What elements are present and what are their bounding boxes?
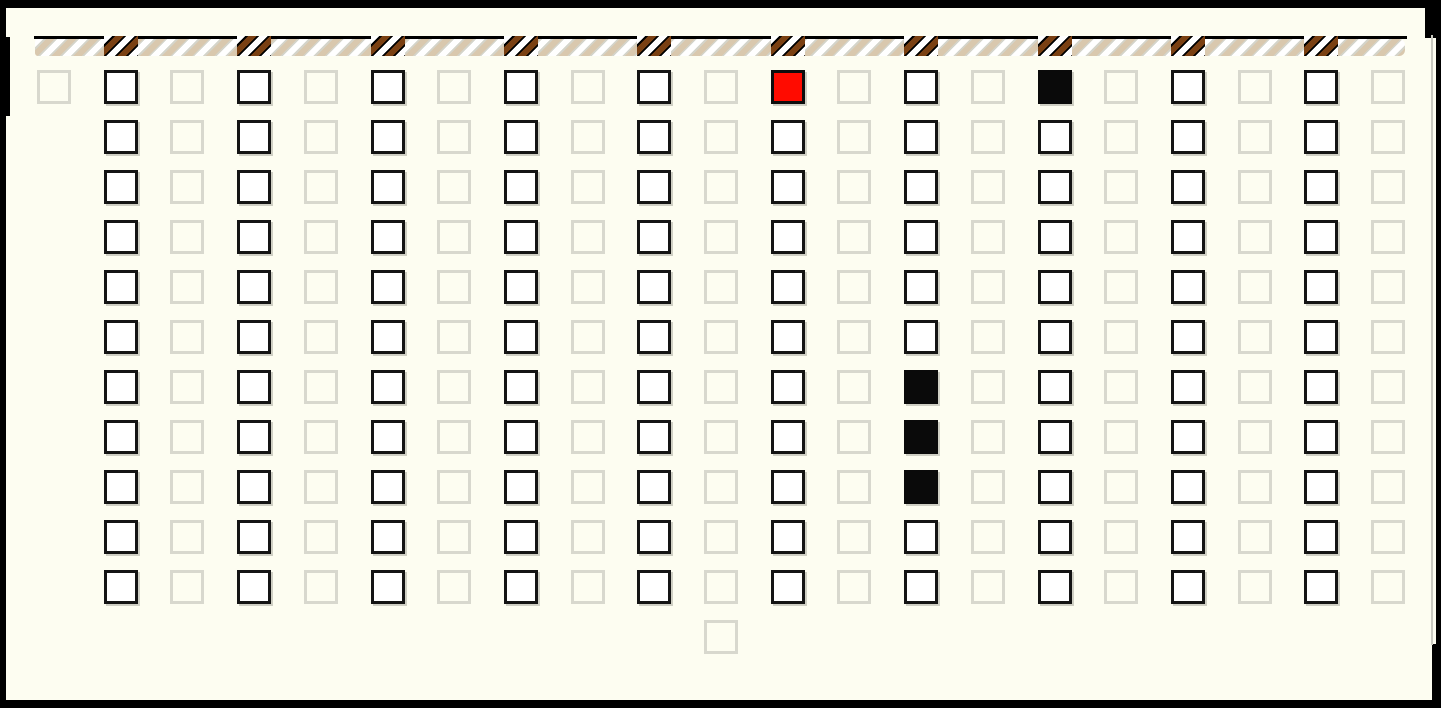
grid-cell	[170, 170, 204, 204]
grid-cell[interactable]	[104, 320, 138, 354]
grid-cell	[971, 120, 1005, 154]
grid-cell[interactable]	[371, 370, 405, 404]
grid-cell	[170, 470, 204, 504]
grid-cell	[1371, 470, 1405, 504]
grid-cell	[1371, 120, 1405, 154]
grid-cell[interactable]	[237, 470, 271, 504]
grid-cell	[437, 170, 471, 204]
grid-cell	[837, 520, 871, 554]
grid-cell[interactable]	[237, 320, 271, 354]
grid-cell	[571, 320, 605, 354]
grid-cell[interactable]	[637, 320, 671, 354]
grid-cell	[1238, 370, 1272, 404]
grid-cell	[304, 270, 338, 304]
grid-cell	[1238, 320, 1272, 354]
grid-cell	[1371, 570, 1405, 604]
grid-cell	[571, 370, 605, 404]
grid-cell	[1238, 420, 1272, 454]
grid-cell[interactable]	[237, 520, 271, 554]
grid-cell[interactable]	[504, 70, 538, 104]
grid-cell	[304, 170, 338, 204]
grid-cell	[1104, 120, 1138, 154]
grid-cell	[170, 420, 204, 454]
grid-cell[interactable]	[1304, 370, 1338, 404]
grid-cell[interactable]	[504, 370, 538, 404]
grid-cell	[437, 320, 471, 354]
grid-cell[interactable]	[371, 470, 405, 504]
grid-cell	[971, 320, 1005, 354]
grid-cell	[837, 320, 871, 354]
grid-cell[interactable]	[104, 470, 138, 504]
grid-cell	[1104, 520, 1138, 554]
grid-cell	[571, 120, 605, 154]
grid-cell[interactable]	[1304, 220, 1338, 254]
grid-cell	[304, 470, 338, 504]
grid-cell	[1371, 520, 1405, 554]
frame-bottom-border	[0, 700, 1441, 708]
grid-cell[interactable]	[371, 420, 405, 454]
grid-cell	[37, 70, 71, 104]
grid-cell[interactable]	[1304, 470, 1338, 504]
grid-cell[interactable]	[237, 220, 271, 254]
grid-cell[interactable]	[104, 270, 138, 304]
grid-cell	[170, 570, 204, 604]
grid-cell[interactable]	[771, 320, 805, 354]
grid-cell	[971, 420, 1005, 454]
frame-right-inner-line	[1431, 35, 1433, 645]
app-window	[0, 0, 1441, 708]
grid-cell	[971, 270, 1005, 304]
grid-cell[interactable]	[104, 170, 138, 204]
grid-cell[interactable]	[1038, 370, 1072, 404]
grid-cell	[1371, 320, 1405, 354]
grid-cell-filled-black[interactable]	[1038, 70, 1072, 104]
grid-cell[interactable]	[237, 70, 271, 104]
grid-cell	[1104, 220, 1138, 254]
grid-cell	[971, 70, 1005, 104]
grid-cell[interactable]	[637, 170, 671, 204]
grid-cell	[1104, 70, 1138, 104]
grid-cell	[571, 170, 605, 204]
grid-cell[interactable]	[104, 120, 138, 154]
grid-cell	[971, 470, 1005, 504]
grid-cell	[437, 570, 471, 604]
grid-cell[interactable]	[904, 320, 938, 354]
grid-cell	[571, 70, 605, 104]
grid-cell[interactable]	[1038, 470, 1072, 504]
grid-cell	[837, 220, 871, 254]
grid-cell	[170, 70, 204, 104]
grid-cell[interactable]	[237, 420, 271, 454]
grid-cell[interactable]	[1038, 270, 1072, 304]
grid-cell[interactable]	[504, 420, 538, 454]
grid-cell	[304, 420, 338, 454]
grid-cell[interactable]	[104, 70, 138, 104]
frame-left-accent	[0, 37, 10, 116]
grid-cell[interactable]	[1304, 270, 1338, 304]
grid-cell[interactable]	[1038, 220, 1072, 254]
grid-cell	[170, 270, 204, 304]
grid-cell	[571, 520, 605, 554]
grid-cell-filled-black[interactable]	[904, 420, 938, 454]
beat-marker-tab[interactable]	[371, 36, 405, 56]
grid-cell[interactable]	[1038, 420, 1072, 454]
grid-cell	[571, 470, 605, 504]
grid-cell	[1104, 420, 1138, 454]
grid-cell	[971, 220, 1005, 254]
grid-cell[interactable]	[771, 370, 805, 404]
grid-cell[interactable]	[904, 220, 938, 254]
grid-cell	[704, 620, 738, 654]
beat-marker-tab[interactable]	[637, 36, 671, 56]
grid-cell[interactable]	[1171, 420, 1205, 454]
grid-cell[interactable]	[104, 570, 138, 604]
grid-cell	[437, 120, 471, 154]
grid-cell	[1104, 320, 1138, 354]
grid-cell	[1104, 370, 1138, 404]
grid-cell[interactable]	[1171, 120, 1205, 154]
grid-cell	[704, 570, 738, 604]
grid-cell[interactable]	[504, 520, 538, 554]
grid-cell-filled-black[interactable]	[904, 470, 938, 504]
grid-cell[interactable]	[504, 570, 538, 604]
grid-cell[interactable]	[1171, 470, 1205, 504]
grid-cell	[704, 220, 738, 254]
grid-cell	[170, 520, 204, 554]
grid-cell[interactable]	[371, 170, 405, 204]
grid-cell	[571, 570, 605, 604]
grid-cell[interactable]	[1304, 520, 1338, 554]
grid-cell	[304, 370, 338, 404]
grid-cell[interactable]	[1171, 170, 1205, 204]
grid-cell[interactable]	[637, 570, 671, 604]
grid-cell[interactable]	[1304, 320, 1338, 354]
grid-cell	[170, 120, 204, 154]
grid-cell	[304, 220, 338, 254]
grid-cell[interactable]	[504, 220, 538, 254]
beat-marker-tab[interactable]	[1304, 36, 1338, 56]
grid-cell	[437, 470, 471, 504]
grid-cell	[1371, 220, 1405, 254]
grid-cell	[170, 220, 204, 254]
grid-cell[interactable]	[1038, 320, 1072, 354]
grid-cell	[971, 170, 1005, 204]
grid-cell[interactable]	[1171, 320, 1205, 354]
grid-cell[interactable]	[237, 120, 271, 154]
grid-cell[interactable]	[371, 120, 405, 154]
grid-cell	[437, 520, 471, 554]
grid-cell	[1238, 470, 1272, 504]
grid-cell[interactable]	[1171, 70, 1205, 104]
grid-cell[interactable]	[504, 270, 538, 304]
grid-cell	[704, 470, 738, 504]
grid-cell[interactable]	[904, 520, 938, 554]
grid-cell[interactable]	[771, 470, 805, 504]
grid-cell	[571, 220, 605, 254]
grid-cell	[437, 420, 471, 454]
grid-cell[interactable]	[1171, 370, 1205, 404]
frame-top-right-accent	[1425, 0, 1441, 38]
grid-cell[interactable]	[637, 70, 671, 104]
grid-cell	[704, 170, 738, 204]
beat-marker-tab[interactable]	[1171, 36, 1205, 56]
grid-cell	[1104, 570, 1138, 604]
grid-cell	[1371, 270, 1405, 304]
grid-cell[interactable]	[771, 520, 805, 554]
grid-cell[interactable]	[1038, 570, 1072, 604]
grid-cell[interactable]	[1171, 570, 1205, 604]
grid-cell[interactable]	[637, 370, 671, 404]
grid-cell	[704, 520, 738, 554]
grid-cell	[837, 70, 871, 104]
grid-cell	[1371, 370, 1405, 404]
grid-cell	[704, 70, 738, 104]
grid-cell	[1238, 520, 1272, 554]
grid-cell	[304, 520, 338, 554]
grid-cell-filled-black[interactable]	[904, 370, 938, 404]
grid-cell[interactable]	[1171, 520, 1205, 554]
grid-cell[interactable]	[371, 70, 405, 104]
grid-cell[interactable]	[371, 220, 405, 254]
grid-cell[interactable]	[637, 420, 671, 454]
grid-cell[interactable]	[771, 270, 805, 304]
grid-cell[interactable]	[1038, 120, 1072, 154]
beat-marker-tab[interactable]	[504, 36, 538, 56]
grid-cell[interactable]	[1304, 70, 1338, 104]
grid-cell[interactable]	[904, 70, 938, 104]
beat-marker-tab[interactable]	[1038, 36, 1072, 56]
grid-cell	[837, 570, 871, 604]
grid-cell[interactable]	[1304, 570, 1338, 604]
beat-marker-tab[interactable]	[237, 36, 271, 56]
grid-cell	[304, 320, 338, 354]
grid-cell[interactable]	[904, 270, 938, 304]
grid-cell	[304, 70, 338, 104]
grid-cell[interactable]	[237, 370, 271, 404]
grid-cell[interactable]	[504, 170, 538, 204]
grid-cell[interactable]	[637, 470, 671, 504]
beat-marker-tab[interactable]	[771, 36, 805, 56]
grid-cell	[971, 520, 1005, 554]
grid-cell	[170, 320, 204, 354]
grid-cell	[1104, 170, 1138, 204]
grid-cell[interactable]	[1171, 220, 1205, 254]
grid-cell	[1104, 270, 1138, 304]
grid-cell[interactable]	[637, 520, 671, 554]
grid-cell	[1371, 70, 1405, 104]
grid-cell[interactable]	[771, 570, 805, 604]
grid-cell[interactable]	[371, 320, 405, 354]
grid-cell	[1238, 270, 1272, 304]
grid-cell	[304, 120, 338, 154]
grid-cell[interactable]	[1171, 270, 1205, 304]
grid-cell	[704, 420, 738, 454]
grid-cell[interactable]	[504, 470, 538, 504]
grid-cell	[1238, 570, 1272, 604]
grid-cell	[1371, 170, 1405, 204]
grid-cell[interactable]	[237, 570, 271, 604]
grid-cell	[1238, 170, 1272, 204]
grid-cell[interactable]	[771, 170, 805, 204]
grid-cell	[837, 420, 871, 454]
grid-cell[interactable]	[504, 320, 538, 354]
grid-cell[interactable]	[104, 520, 138, 554]
grid-cell[interactable]	[1038, 520, 1072, 554]
grid-cell	[304, 570, 338, 604]
grid-cell	[437, 270, 471, 304]
grid-cell	[704, 370, 738, 404]
grid-cell[interactable]	[237, 270, 271, 304]
grid-cell[interactable]	[904, 570, 938, 604]
grid-cell	[704, 120, 738, 154]
grid-cell[interactable]	[771, 220, 805, 254]
grid-cell	[170, 370, 204, 404]
frame-top-border	[0, 0, 1441, 8]
grid-cell	[1238, 70, 1272, 104]
grid-cell[interactable]	[104, 370, 138, 404]
beat-marker-tab[interactable]	[904, 36, 938, 56]
grid-cell[interactable]	[637, 120, 671, 154]
grid-cell	[1238, 120, 1272, 154]
grid-cell[interactable]	[1304, 170, 1338, 204]
grid-cell	[1238, 220, 1272, 254]
grid-cell	[971, 370, 1005, 404]
grid-cell[interactable]	[504, 120, 538, 154]
grid-cell	[437, 220, 471, 254]
grid-cell	[437, 70, 471, 104]
grid-cell	[704, 320, 738, 354]
grid-cell[interactable]	[637, 220, 671, 254]
grid-cell[interactable]	[104, 220, 138, 254]
frame-right-border	[1436, 0, 1441, 708]
grid-cell[interactable]	[371, 520, 405, 554]
grid-cell	[704, 270, 738, 304]
grid-cell	[837, 120, 871, 154]
frame-bottom-right-accent	[1432, 644, 1441, 708]
grid-cell[interactable]	[1038, 170, 1072, 204]
grid-cell[interactable]	[371, 570, 405, 604]
grid-cell	[571, 420, 605, 454]
grid-cell	[837, 370, 871, 404]
grid-cell[interactable]	[371, 270, 405, 304]
grid-cell[interactable]	[904, 120, 938, 154]
grid-cell[interactable]	[237, 170, 271, 204]
grid-cell[interactable]	[1304, 420, 1338, 454]
beat-marker-tab[interactable]	[104, 36, 138, 56]
grid-cell[interactable]	[771, 420, 805, 454]
grid-cell	[837, 470, 871, 504]
grid-cell-filled-red[interactable]	[771, 70, 805, 104]
grid-cell[interactable]	[1304, 120, 1338, 154]
grid-cell[interactable]	[104, 420, 138, 454]
grid-cell	[571, 270, 605, 304]
grid-cell	[1371, 420, 1405, 454]
grid-cell[interactable]	[904, 170, 938, 204]
grid-cell[interactable]	[771, 120, 805, 154]
grid-cell	[437, 370, 471, 404]
grid-cell	[837, 270, 871, 304]
grid-cell	[837, 170, 871, 204]
grid-cell	[971, 570, 1005, 604]
grid-cell[interactable]	[637, 270, 671, 304]
grid-cell	[1104, 470, 1138, 504]
